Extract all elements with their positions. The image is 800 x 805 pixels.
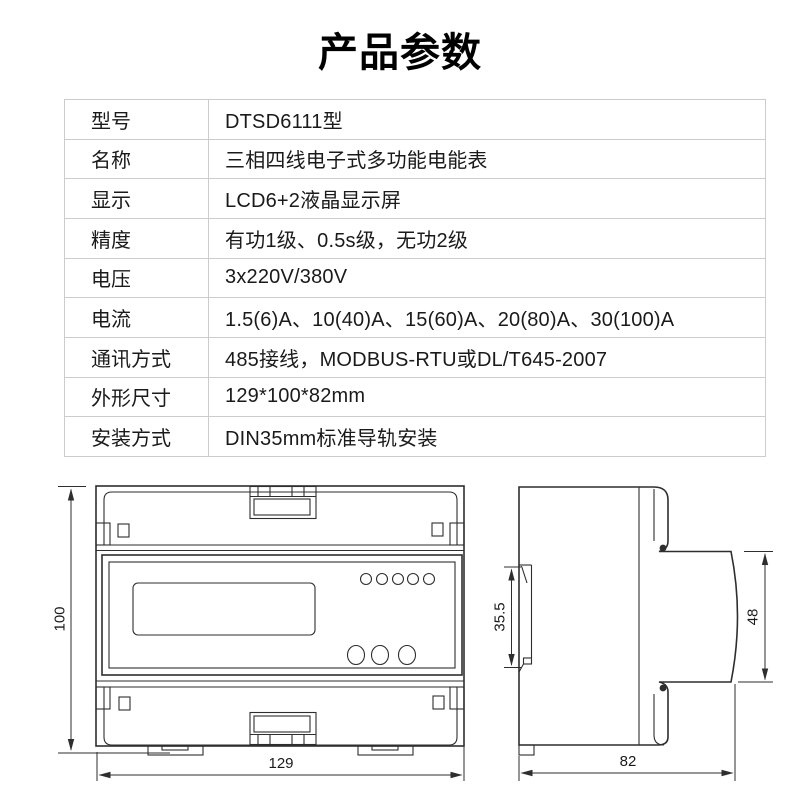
table-row: 电压3x220V/380V <box>65 258 766 298</box>
dimension-drawing-svg: 100 129 35.5 48 82 <box>0 470 800 800</box>
din-rail-tab <box>519 565 532 672</box>
spec-value: 3x220V/380V <box>209 258 766 298</box>
front-view <box>96 486 464 755</box>
spec-label: 精度 <box>65 218 209 258</box>
spec-label: 电压 <box>65 258 209 298</box>
faceplate <box>102 555 462 675</box>
spec-value: 有功1级、0.5s级，无功2级 <box>209 218 766 258</box>
screw <box>660 545 667 552</box>
seal-hole <box>119 697 130 710</box>
table-row: 外形尺寸129*100*82mm <box>65 377 766 417</box>
seal-hole <box>433 696 444 709</box>
dim-label-48: 48 <box>745 609 762 626</box>
spec-value: 1.5(6)A、10(40)A、15(60)A、20(80)A、30(100)A <box>209 298 766 338</box>
technical-drawing: 100 129 35.5 48 82 <box>0 470 800 800</box>
screw <box>660 685 667 692</box>
table-row: 安装方式DIN35mm标准导轨安装 <box>65 417 766 457</box>
indicator-lights <box>361 574 435 585</box>
side-outline <box>519 487 738 745</box>
side-view <box>519 487 738 755</box>
spec-label: 型号 <box>65 100 209 140</box>
dim-label-100: 100 <box>52 606 69 631</box>
seal-hole <box>432 523 443 536</box>
dim-rail-height: 35.5 <box>492 567 522 668</box>
product-spec-page: { "page": { "title": "产品参数" }, "specs": … <box>0 0 800 800</box>
spec-label: 外形尺寸 <box>65 377 209 417</box>
spec-value: 485接线，MODBUS-RTU或DL/T645-2007 <box>209 337 766 377</box>
dim-label-35-5: 35.5 <box>492 602 509 631</box>
table-row: 型号DTSD6111型 <box>65 100 766 140</box>
dim-label-82: 82 <box>620 753 637 770</box>
table-row: 通讯方式485接线，MODBUS-RTU或DL/T645-2007 <box>65 337 766 377</box>
spec-label: 显示 <box>65 179 209 219</box>
top-clip <box>250 487 316 519</box>
spec-label: 电流 <box>65 298 209 338</box>
spec-value: LCD6+2液晶显示屏 <box>209 179 766 219</box>
dim-front-width: 129 <box>97 678 464 781</box>
mount-foot <box>519 745 534 755</box>
spec-label: 名称 <box>65 139 209 179</box>
spec-label: 安装方式 <box>65 417 209 457</box>
table-row: 显示LCD6+2液晶显示屏 <box>65 179 766 219</box>
front-outline <box>96 486 464 746</box>
table-row: 电流1.5(6)A、10(40)A、15(60)A、20(80)A、30(100… <box>65 298 766 338</box>
spec-value: 三相四线电子式多功能电能表 <box>209 139 766 179</box>
spec-value: 129*100*82mm <box>209 377 766 417</box>
lcd-display <box>133 583 315 635</box>
spec-value: DIN35mm标准导轨安装 <box>209 417 766 457</box>
panel-buttons <box>348 646 416 665</box>
spec-value: DTSD6111型 <box>209 100 766 140</box>
spec-label: 通讯方式 <box>65 337 209 377</box>
bottom-clip <box>250 713 316 745</box>
mount-feet <box>148 746 413 755</box>
dim-front-height: 100 <box>52 487 171 754</box>
seal-hole <box>118 524 129 537</box>
table-row: 名称三相四线电子式多功能电能表 <box>65 139 766 179</box>
dim-depth: 82 <box>519 684 735 781</box>
dimensions: 100 129 35.5 48 82 <box>52 487 774 782</box>
table-row: 精度有功1级、0.5s级，无功2级 <box>65 218 766 258</box>
spec-table: 型号DTSD6111型 名称三相四线电子式多功能电能表 显示LCD6+2液晶显示… <box>64 99 766 457</box>
page-title: 产品参数 <box>0 20 800 78</box>
dim-face-height: 48 <box>738 552 773 683</box>
dim-label-129: 129 <box>268 755 293 772</box>
